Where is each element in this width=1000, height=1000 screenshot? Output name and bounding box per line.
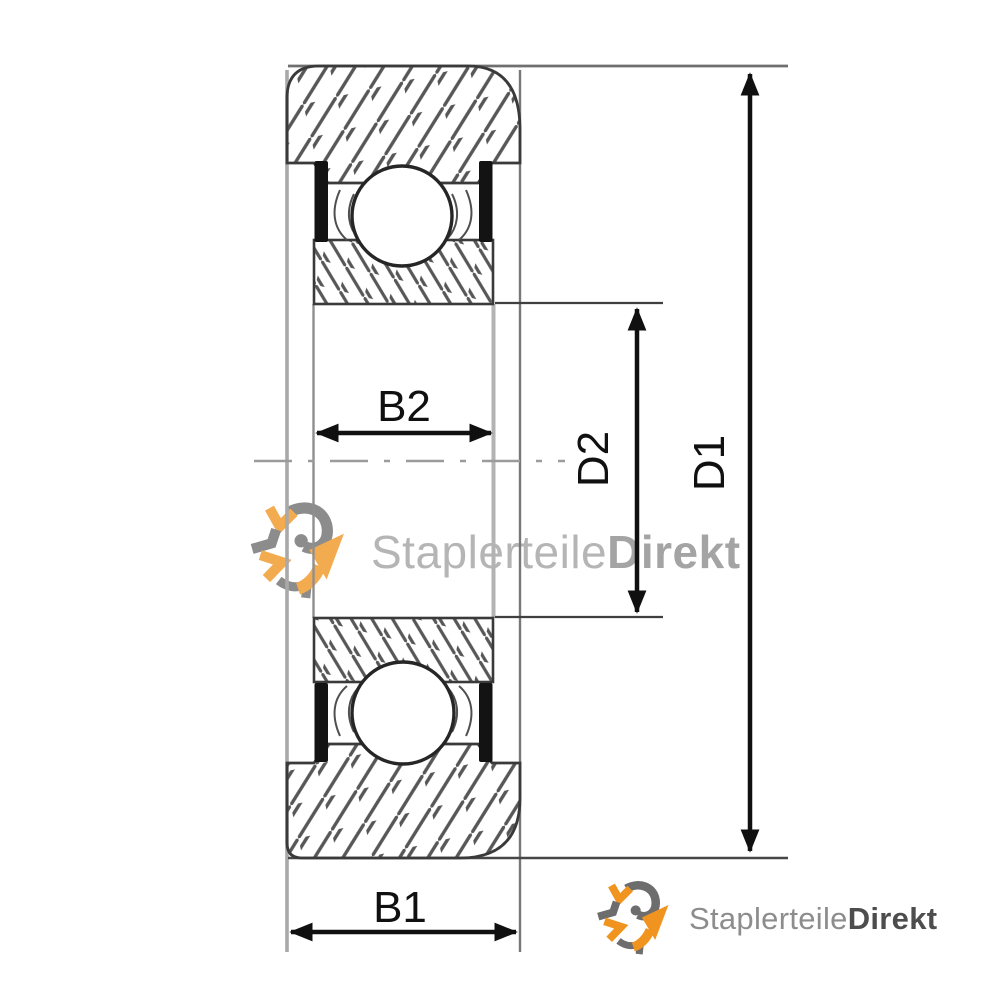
footer-brand-regular: Staplerteile bbox=[689, 901, 848, 936]
top-ball bbox=[352, 166, 452, 266]
top-left-seal bbox=[315, 161, 329, 242]
bottom-ball bbox=[352, 662, 454, 764]
footer-brand-bold: Direkt bbox=[848, 901, 938, 936]
diagram-canvas: StaplerteileDirekt bbox=[0, 0, 1000, 1000]
bottom-right-seal bbox=[479, 683, 493, 762]
b2-dimension-label: B2 bbox=[377, 382, 431, 431]
d1-dimension-label: D1 bbox=[685, 435, 734, 491]
top-bearing-section bbox=[287, 66, 520, 304]
d2-dimension-label: D2 bbox=[569, 431, 618, 487]
bottom-bearing-section bbox=[287, 618, 520, 858]
bearing-drawing: B2 D2 D1 B1 bbox=[0, 0, 1000, 1000]
circular-arrows-logo-icon bbox=[590, 880, 672, 958]
bottom-left-seal bbox=[315, 683, 329, 762]
footer-brand-text: StaplerteileDirekt bbox=[689, 901, 937, 937]
b1-dimension-label: B1 bbox=[373, 883, 427, 932]
top-right-seal bbox=[479, 161, 493, 242]
footer-brand-logo: StaplerteileDirekt bbox=[590, 880, 937, 958]
